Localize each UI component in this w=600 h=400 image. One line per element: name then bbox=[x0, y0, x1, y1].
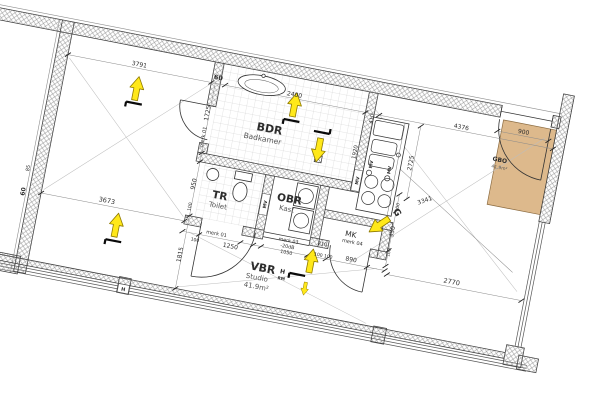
vent-arrow-4 bbox=[107, 212, 125, 238]
vbr-rm-label: RM bbox=[277, 275, 285, 281]
dim-1725: 1725 bbox=[203, 105, 213, 122]
washbasin-tap bbox=[262, 74, 266, 78]
vent-bracket-4 bbox=[105, 239, 122, 247]
dim-350: 350 bbox=[388, 225, 397, 238]
floor-plan-canvas: MV MV MV MV G H bbox=[0, 0, 600, 400]
dim-2725: 2725 bbox=[406, 155, 416, 172]
dim-60-left: 60 bbox=[19, 187, 27, 197]
vent-bracket-1 bbox=[125, 102, 142, 110]
vent-bracket-5 bbox=[288, 273, 305, 281]
dim-3791: 3791 bbox=[131, 60, 148, 70]
room-sublabel-obr: Kast bbox=[278, 204, 295, 215]
dim-85: 85 bbox=[25, 164, 32, 171]
dim-4376: 4376 bbox=[453, 123, 470, 133]
room-label-gbo: GBO bbox=[492, 156, 508, 166]
vent-arrow-1 bbox=[128, 75, 146, 101]
dim-3341: 3341 bbox=[417, 195, 434, 207]
window-h-marker: H bbox=[117, 284, 129, 294]
dim-1815: 1815 bbox=[175, 246, 185, 263]
vent-arrow-5 bbox=[302, 248, 320, 274]
dim-100-a: 100 bbox=[186, 202, 194, 212]
mk-door-arc bbox=[323, 245, 370, 292]
dim-merk04: merk 04 bbox=[341, 238, 363, 248]
plan-rotated-group: MV MV MV MV G H bbox=[0, 0, 589, 375]
floor-plan-svg: MV MV MV MV G H bbox=[0, 0, 600, 400]
dim-1250: 1250 bbox=[222, 242, 239, 252]
dim-950: 950 bbox=[190, 178, 199, 191]
